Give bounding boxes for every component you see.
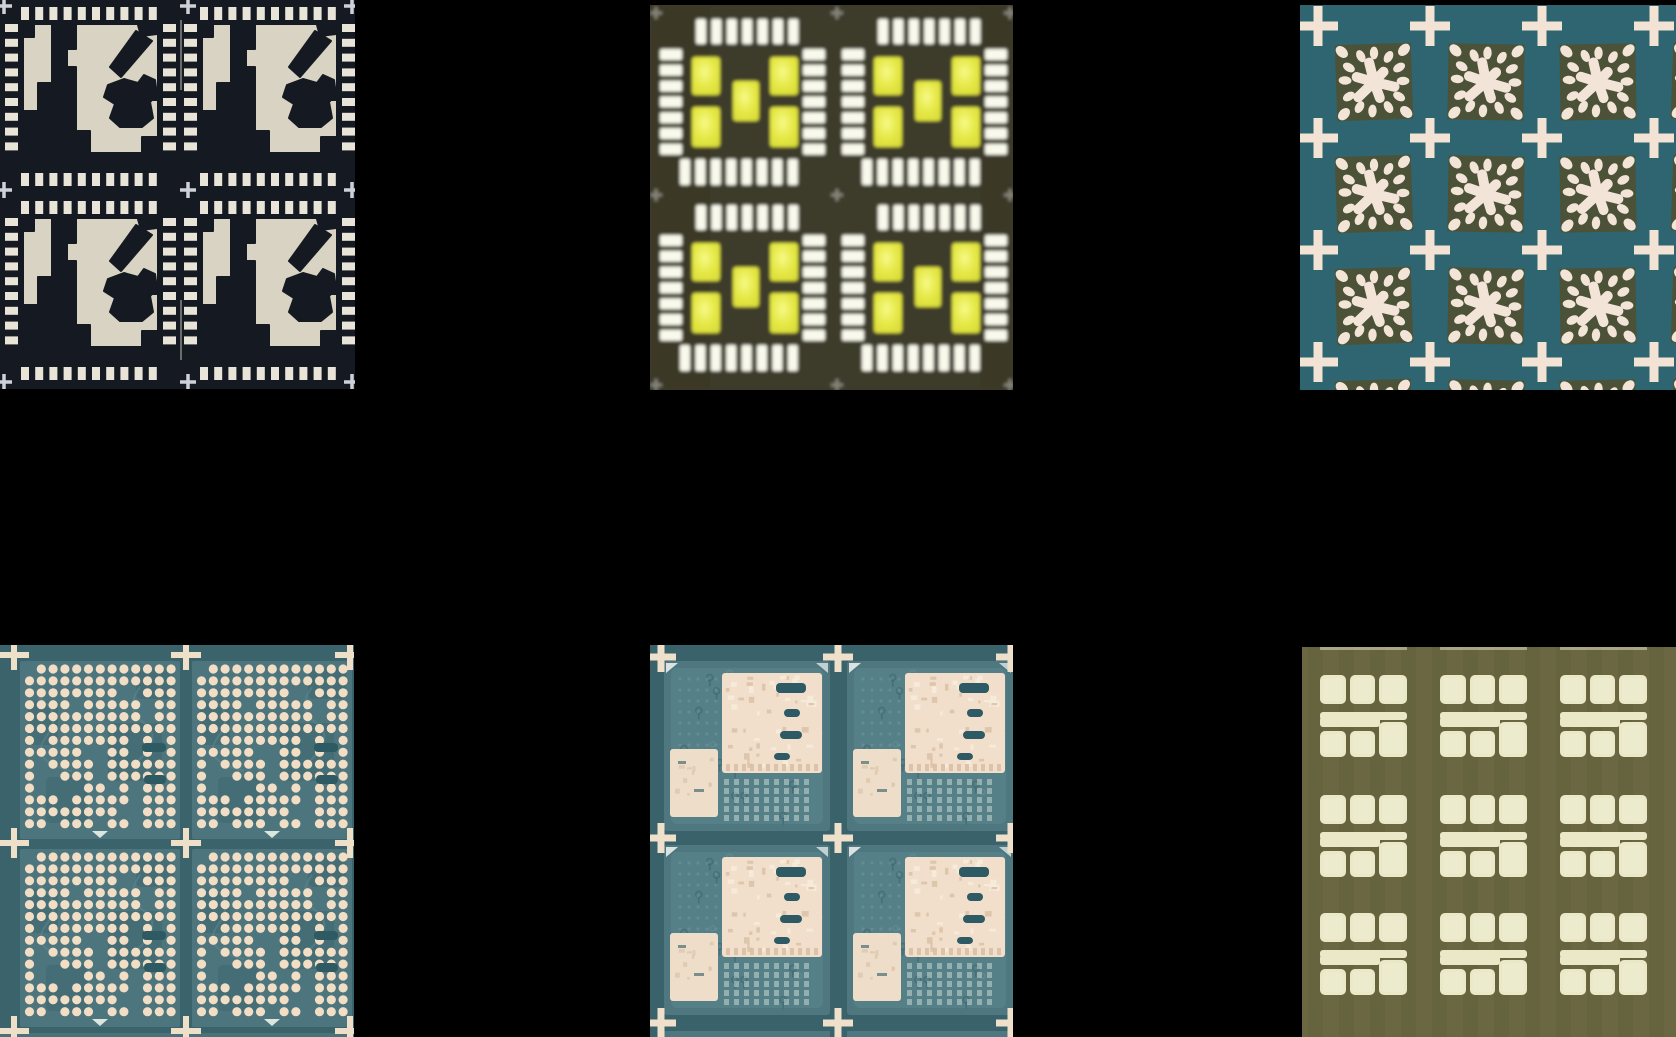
- copper-trace-substrate-image: [650, 645, 1013, 1037]
- panel-yellow-pad-units: [650, 5, 1013, 390]
- panel-bga-dot-substrate: [0, 645, 354, 1037]
- panel-olive-pad-groups: [1302, 647, 1676, 1037]
- splat-etch-grid-image: [1300, 5, 1676, 390]
- yellow-pad-units-image: [650, 5, 1013, 390]
- panel-splat-etch-grid: [1300, 5, 1676, 390]
- qfn-leadframe-image: [0, 0, 355, 389]
- figure-canvas: [0, 0, 1676, 1037]
- panel-qfn-leadframe: [0, 0, 355, 389]
- panel-copper-trace-substrate: [650, 645, 1013, 1037]
- bga-dot-substrate-image: [0, 645, 354, 1037]
- olive-pad-groups-image: [1302, 647, 1676, 1037]
